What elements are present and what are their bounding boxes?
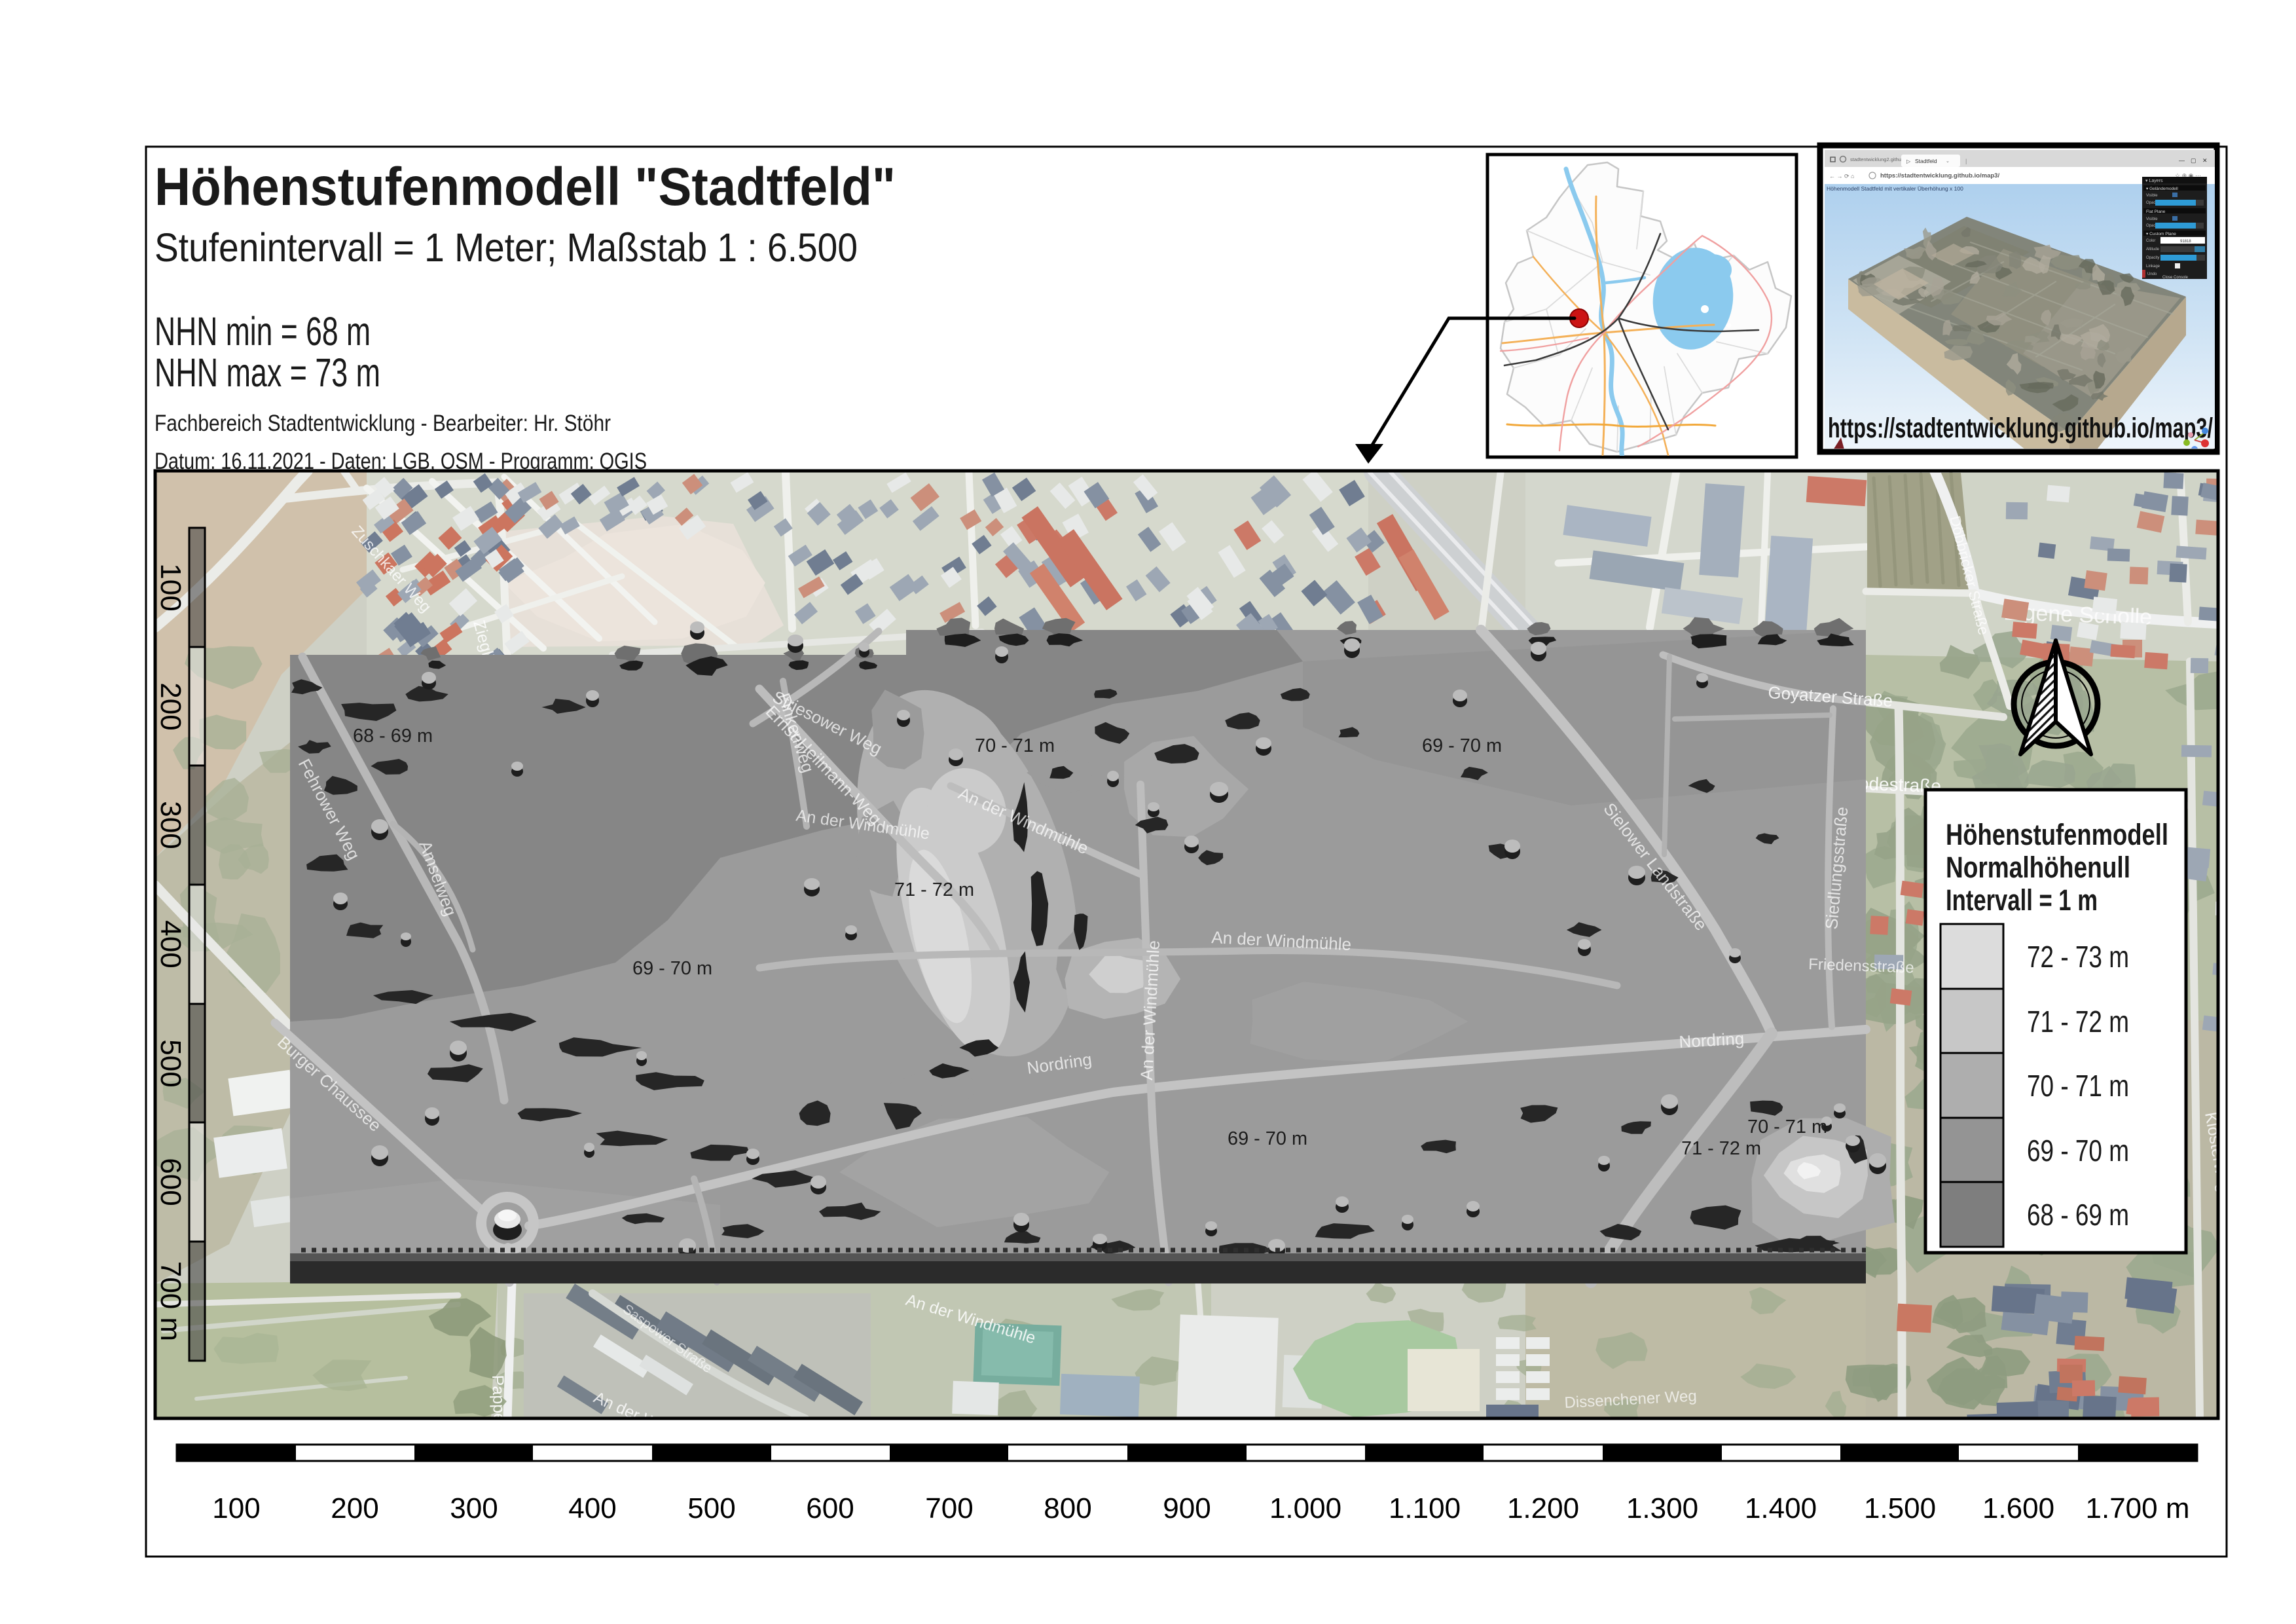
svg-text:NHN min = 68 m: NHN min = 68 m bbox=[155, 309, 371, 354]
svg-text:1.300: 1.300 bbox=[1626, 1492, 1698, 1524]
svg-text:91818: 91818 bbox=[2180, 240, 2191, 244]
svg-text:71 - 72 m: 71 - 72 m bbox=[1681, 1138, 1761, 1159]
svg-text:1.500: 1.500 bbox=[1864, 1492, 1936, 1524]
svg-text:69 - 70 m: 69 - 70 m bbox=[2027, 1134, 2129, 1168]
svg-text:70 - 71 m: 70 - 71 m bbox=[2027, 1069, 2129, 1103]
svg-text:✕: ✕ bbox=[2202, 157, 2208, 164]
svg-text:400: 400 bbox=[155, 920, 187, 968]
svg-text:1.200: 1.200 bbox=[1507, 1492, 1579, 1524]
svg-text:Visible: Visible bbox=[2146, 194, 2158, 198]
svg-text:600: 600 bbox=[155, 1158, 187, 1206]
svg-text:▢: ▢ bbox=[2191, 157, 2196, 164]
svg-text:69 - 70 m: 69 - 70 m bbox=[632, 958, 712, 979]
svg-text:69 - 70 m: 69 - 70 m bbox=[1228, 1128, 1307, 1149]
svg-text:https://stadtentwicklung.githu: https://stadtentwicklung.github.io/map3/ bbox=[1828, 413, 2213, 444]
svg-text:71 - 72 m: 71 - 72 m bbox=[894, 879, 974, 900]
svg-text:▾ Layers: ▾ Layers bbox=[2145, 179, 2163, 183]
svg-text:NHN max = 73 m: NHN max = 73 m bbox=[155, 350, 380, 395]
svg-text:200: 200 bbox=[155, 682, 187, 730]
svg-text:Stufenintervall = 1 Meter; Maß: Stufenintervall = 1 Meter; Maßstab 1 : 6… bbox=[155, 225, 858, 270]
svg-text:1.400: 1.400 bbox=[1745, 1492, 1817, 1524]
svg-text:300: 300 bbox=[155, 801, 187, 849]
svg-text:68 - 69 m: 68 - 69 m bbox=[2027, 1198, 2129, 1232]
svg-text:Color: Color bbox=[2146, 239, 2155, 243]
svg-text:1.100: 1.100 bbox=[1389, 1492, 1461, 1524]
svg-text:▷: ▷ bbox=[1906, 158, 1911, 164]
svg-text:1.700 m: 1.700 m bbox=[2086, 1492, 2190, 1524]
svg-text:Höhenstufenmodell "Stadtfeld": Höhenstufenmodell "Stadtfeld" bbox=[155, 157, 896, 217]
svg-text:70 - 71 m: 70 - 71 m bbox=[975, 735, 1055, 756]
svg-text:700 m: 700 m bbox=[155, 1261, 187, 1341]
svg-text:▾ Custom Plane: ▾ Custom Plane bbox=[2146, 232, 2176, 236]
svg-text:400: 400 bbox=[568, 1492, 616, 1524]
svg-text:200: 200 bbox=[331, 1492, 378, 1524]
svg-text:← → ⟳ ⌂: ← → ⟳ ⌂ bbox=[1829, 173, 1854, 179]
svg-text:300: 300 bbox=[450, 1492, 498, 1524]
svg-text:—: — bbox=[2179, 157, 2185, 164]
svg-text:|: | bbox=[1965, 158, 1967, 164]
svg-text:Undo: Undo bbox=[2147, 272, 2157, 276]
svg-text:Fachbereich Stadtentwicklung -: Fachbereich Stadtentwicklung - Bearbeite… bbox=[155, 411, 611, 436]
svg-text:800: 800 bbox=[1044, 1492, 1091, 1524]
svg-text:1.000: 1.000 bbox=[1269, 1492, 1341, 1524]
svg-text:Linkage: Linkage bbox=[2146, 265, 2160, 268]
svg-text:100: 100 bbox=[155, 563, 187, 611]
svg-text:70 - 71 m: 70 - 71 m bbox=[1747, 1116, 1827, 1137]
svg-text:68 - 69 m: 68 - 69 m bbox=[353, 726, 433, 747]
svg-text:Close Console: Close Console bbox=[2162, 276, 2189, 280]
svg-text:700: 700 bbox=[925, 1492, 973, 1524]
svg-text:Höhenstufenmodell: Höhenstufenmodell bbox=[1946, 818, 2168, 851]
svg-text:Flat Plane: Flat Plane bbox=[2146, 210, 2166, 214]
svg-text:72 - 73 m: 72 - 73 m bbox=[2027, 940, 2129, 974]
svg-text:Normalhöhenull: Normalhöhenull bbox=[1946, 851, 2130, 884]
svg-text:https://stadtentwicklung.githu: https://stadtentwicklung.github.io/map3/ bbox=[1880, 172, 1999, 179]
svg-text:900: 900 bbox=[1163, 1492, 1211, 1524]
svg-text:69 - 70 m: 69 - 70 m bbox=[1422, 735, 1502, 756]
svg-text:▾ Geländemodell: ▾ Geländemodell bbox=[2146, 187, 2178, 191]
svg-text:71 - 72 m: 71 - 72 m bbox=[2027, 1005, 2129, 1039]
svg-text:500: 500 bbox=[155, 1039, 187, 1087]
svg-text:100: 100 bbox=[212, 1492, 260, 1524]
svg-text:500: 500 bbox=[687, 1492, 735, 1524]
svg-text:Visible: Visible bbox=[2146, 217, 2158, 221]
svg-text:Nordring: Nordring bbox=[1679, 1029, 1745, 1052]
svg-text:⌄: ⌄ bbox=[1946, 159, 1950, 164]
svg-text:Höhenmodell Stadtfeld mit vert: Höhenmodell Stadtfeld mit vertikaler Übe… bbox=[1827, 185, 1963, 192]
svg-text:Friedensstraße: Friedensstraße bbox=[1808, 955, 1914, 977]
svg-text:Altitude: Altitude bbox=[2146, 248, 2160, 251]
svg-text:600: 600 bbox=[806, 1492, 854, 1524]
svg-text:1.600: 1.600 bbox=[1982, 1492, 2054, 1524]
svg-text:Stadtfeld: Stadtfeld bbox=[1915, 158, 1937, 164]
svg-text:Intervall = 1 m: Intervall = 1 m bbox=[1946, 883, 2098, 917]
